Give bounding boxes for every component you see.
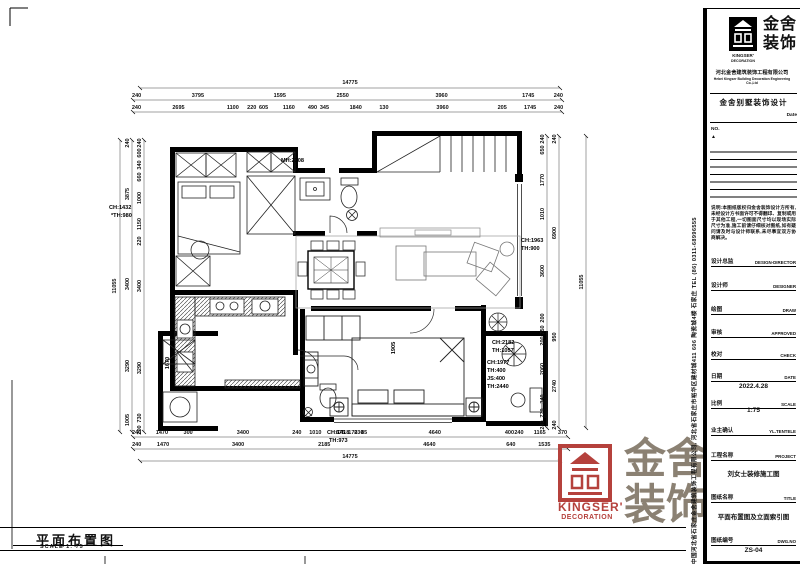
dimension-text: 3795	[192, 93, 204, 99]
tb-field-label-cn: 绘图	[711, 305, 722, 313]
tb-field-label-en: APPROVED	[771, 331, 796, 336]
dimension-text: 240	[514, 430, 523, 436]
dimension-text: 11055	[579, 275, 585, 290]
drawing-sheet: 1477524037951595255039601745240240269511…	[0, 0, 800, 572]
dimension-text: 1745	[522, 93, 534, 99]
tb-field-label-cn: 设计师	[711, 281, 728, 289]
titleblock: KINGSER' DECORATION 金舍 装饰 河北金舍建筑装饰工程有限公司…	[703, 8, 800, 564]
tb-field-label-cn: 工程名称	[711, 451, 733, 459]
tb-field-dwg-no: 图纸编号DWG.NO	[711, 536, 796, 546]
dimension-text: 14775	[342, 454, 357, 460]
tb-notes: 说明:本图纸版权归金舍装饰设计方所有,未经设计方书面许可不得翻印、复制或用于其他…	[711, 205, 796, 241]
dimension-text: 3400	[237, 430, 249, 436]
plan-label: CH:2182	[492, 340, 514, 346]
tb-revision-rules	[710, 145, 797, 201]
tb-field-value: 平面布置图及立面索引图	[707, 511, 800, 521]
dimension-text: 1745	[524, 105, 536, 111]
dimension-text: 370	[558, 430, 567, 436]
tb-field-label-cn: 业主确认	[711, 426, 733, 434]
dimension-text: 1100	[227, 105, 239, 111]
plan-scale: SCALE 1: 75	[40, 544, 84, 550]
dimension-text: 1470	[156, 430, 168, 436]
dimension-text: 200	[540, 313, 546, 322]
plan-label: TH:1057	[492, 348, 514, 354]
sheet-frame	[10, 8, 305, 564]
dimension-text: 3875	[125, 188, 131, 200]
dimension-text: 85	[361, 430, 367, 436]
dimension-text: 130	[379, 105, 388, 111]
plan-label: MH:2308	[281, 158, 304, 164]
tb-field-label-en: DATE	[784, 375, 796, 380]
tb-field-design-director: 设计总监DESIGN-DIRECTOR	[711, 257, 796, 267]
dimension-text: 240	[125, 138, 131, 147]
dimension-text: 2550	[337, 93, 349, 99]
dimension-text: 2740	[552, 379, 558, 391]
tb-field-label-en: DWG.NO	[777, 539, 796, 544]
dimension-text: 1010	[309, 430, 321, 436]
dimension-text: 1160	[283, 105, 295, 111]
tb-field-label-en: DRAW	[783, 308, 796, 313]
tb-field-date: 日期DATE	[711, 372, 796, 382]
dimension-text: 650	[540, 145, 546, 154]
dimension-text: 200	[540, 337, 546, 346]
plan-label: CH:1432	[109, 205, 131, 211]
dimension-text: 4640	[429, 430, 441, 436]
dimension-text: 345	[320, 105, 329, 111]
dimension-text: 2695	[172, 105, 184, 111]
dimension-text: 600	[137, 149, 143, 158]
dimension-text: 400	[505, 430, 514, 436]
kingser-logo-red-icon	[552, 444, 622, 502]
dimension-text: 3960	[436, 105, 448, 111]
dimension-text: 3290	[137, 362, 143, 374]
plan-label: TH:2440	[487, 384, 509, 390]
plan-label: TH:400	[487, 368, 506, 374]
dimension-text: 220	[137, 237, 143, 246]
plan-label: 1905	[391, 342, 397, 354]
tb-logo-en2: DECORATION	[721, 59, 765, 63]
dimension-text: 240	[132, 105, 141, 111]
watermark-en-line1: KINGSER'	[558, 500, 616, 514]
tb-field-label-en: PROJECT	[775, 454, 796, 459]
dimension-text: 950	[552, 332, 558, 341]
tb-logo-en1: KINGSER'	[721, 53, 765, 58]
dimension-text: 240	[554, 105, 563, 111]
tb-field-project: 工程名称PROJECT	[711, 451, 796, 461]
dimension-text: 660	[137, 173, 143, 182]
dimension-text: 240	[540, 134, 546, 143]
dimension-text: 3960	[435, 93, 447, 99]
tb-field-label-cn: 图纸名称	[711, 493, 733, 501]
dimension-text: 240	[132, 442, 141, 448]
dimension-text: 6900	[552, 227, 558, 239]
tb-brand-cn: 金舍 装饰	[763, 15, 797, 53]
stairs	[377, 136, 506, 172]
dimension-text: 1010	[540, 208, 546, 220]
bedroom-left-furniture	[176, 152, 295, 286]
dimension-text: 340	[540, 394, 546, 403]
dimension-text: 1165	[534, 430, 546, 436]
dimension-text: 1000	[137, 192, 143, 204]
dimension-text: 240	[292, 430, 301, 436]
plan-label: CH:1418	[327, 430, 349, 436]
plan-label: *TH:980	[111, 213, 132, 219]
dimension-text: 770	[540, 408, 546, 417]
dimension-text: 240	[132, 93, 141, 99]
dimension-text: 200	[137, 425, 143, 434]
dimension-text: 1470	[157, 442, 169, 448]
dimension-text: 3400	[232, 442, 244, 448]
tb-field-value: ZS-04	[707, 547, 800, 554]
dimension-text: 4640	[423, 442, 435, 448]
dimension-text: 1595	[274, 93, 286, 99]
tb-field-value: 2022.4.28	[707, 383, 800, 390]
dimension-text: 1770	[540, 174, 546, 186]
titleblock-side-text: 中国河北省石家庄金舍建筑装饰工程有限公司, 河北省石家庄市裕华区建材城411 6…	[690, 4, 698, 564]
tb-field-value: 刘女士装修施工图	[707, 468, 800, 478]
dimension-text: 220	[247, 105, 256, 111]
plan-label: CH:1963	[521, 238, 543, 244]
dimension-text: 1840	[350, 105, 362, 111]
tb-divider	[710, 93, 797, 94]
dimension-text: 1150	[137, 218, 143, 230]
tb-company-cn: 河北金舍建筑装饰工程有限公司	[709, 69, 795, 76]
bathroom-top-fixtures	[300, 178, 358, 233]
dimension-text: 1005	[125, 413, 131, 425]
tb-field-value: 1:75	[707, 407, 800, 414]
tb-date-row: Date	[710, 113, 797, 123]
tb-company-en: Hebei Kingser Building Decoration Engine…	[709, 77, 795, 85]
dimension-text: 240	[552, 420, 558, 429]
dimension-text: 3290	[125, 360, 131, 372]
plan-label: 1670	[165, 357, 171, 369]
dimension-text: 240	[137, 138, 143, 147]
tb-field-draw: 绘图DRAW	[711, 305, 796, 315]
watermark-en-line2: DECORATION	[554, 514, 620, 521]
dimension-text: 340	[137, 160, 143, 169]
dimension-text: 14775	[342, 80, 357, 86]
living-dining-furniture	[296, 228, 520, 333]
plan-label: JS:400	[487, 376, 505, 382]
tb-field-label-en: DESIGNER	[773, 284, 796, 289]
tb-field-label-cn: 审核	[711, 328, 722, 336]
tb-field-designer: 设计师DESIGNER	[711, 281, 796, 291]
dimension-text: 490	[308, 105, 317, 111]
dimension-text: 730	[137, 413, 143, 422]
tb-dept-title: 金舍别墅装饰设计	[707, 97, 800, 108]
dimension-text: 240	[554, 93, 563, 99]
tb-no-label: NO.	[711, 127, 720, 132]
dimension-text: 1535	[538, 442, 550, 448]
tb-field-label-cn: 比例	[711, 399, 722, 407]
tb-field-label-cn: 日期	[711, 372, 722, 380]
plan-label: CH:1977	[487, 360, 509, 366]
tb-field-label-cn: 设计总监	[711, 257, 733, 265]
plan-label: TH:973	[329, 438, 348, 444]
tb-field-label-en: TITLE	[784, 496, 796, 501]
dimension-text: 605	[259, 105, 268, 111]
tb-field-label-en: CHECK	[780, 353, 796, 358]
tb-field-title: 图纸名称TITLE	[711, 493, 796, 503]
dimension-text: 3400	[137, 280, 143, 292]
dimension-text: 240	[540, 420, 546, 429]
tb-field-approved: 审核APPROVED	[711, 328, 796, 338]
tb-field-label-cn: 图纸编号	[711, 536, 733, 544]
dimension-text: 3400	[125, 278, 131, 290]
plan-label: TH:900	[521, 246, 540, 252]
tb-field-label-en: YL.TENTELE	[769, 429, 796, 434]
dimension-text: 3600	[540, 265, 546, 277]
tb-field-label-en: DESIGN-DIRECTOR	[755, 260, 796, 265]
tb-field-yl-tentele: 业主确认YL.TENTELE	[711, 426, 796, 436]
kingser-logo-black-icon	[729, 17, 757, 51]
dimension-text: 205	[498, 105, 507, 111]
tb-field-check: 校对CHECK	[711, 350, 796, 360]
dimension-text: 750	[540, 325, 546, 334]
tb-field-label-cn: 校对	[711, 350, 722, 358]
plan-windows	[334, 184, 545, 423]
dimension-text: 240	[552, 135, 558, 144]
bedroom-main-furniture	[304, 316, 482, 416]
dimension-text: 11055	[112, 279, 118, 294]
dimension-text: 300	[184, 430, 193, 436]
dimension-text: 640	[506, 442, 515, 448]
tb-revision-mark: ▲	[711, 134, 716, 140]
dimension-text: 2060	[540, 363, 546, 375]
